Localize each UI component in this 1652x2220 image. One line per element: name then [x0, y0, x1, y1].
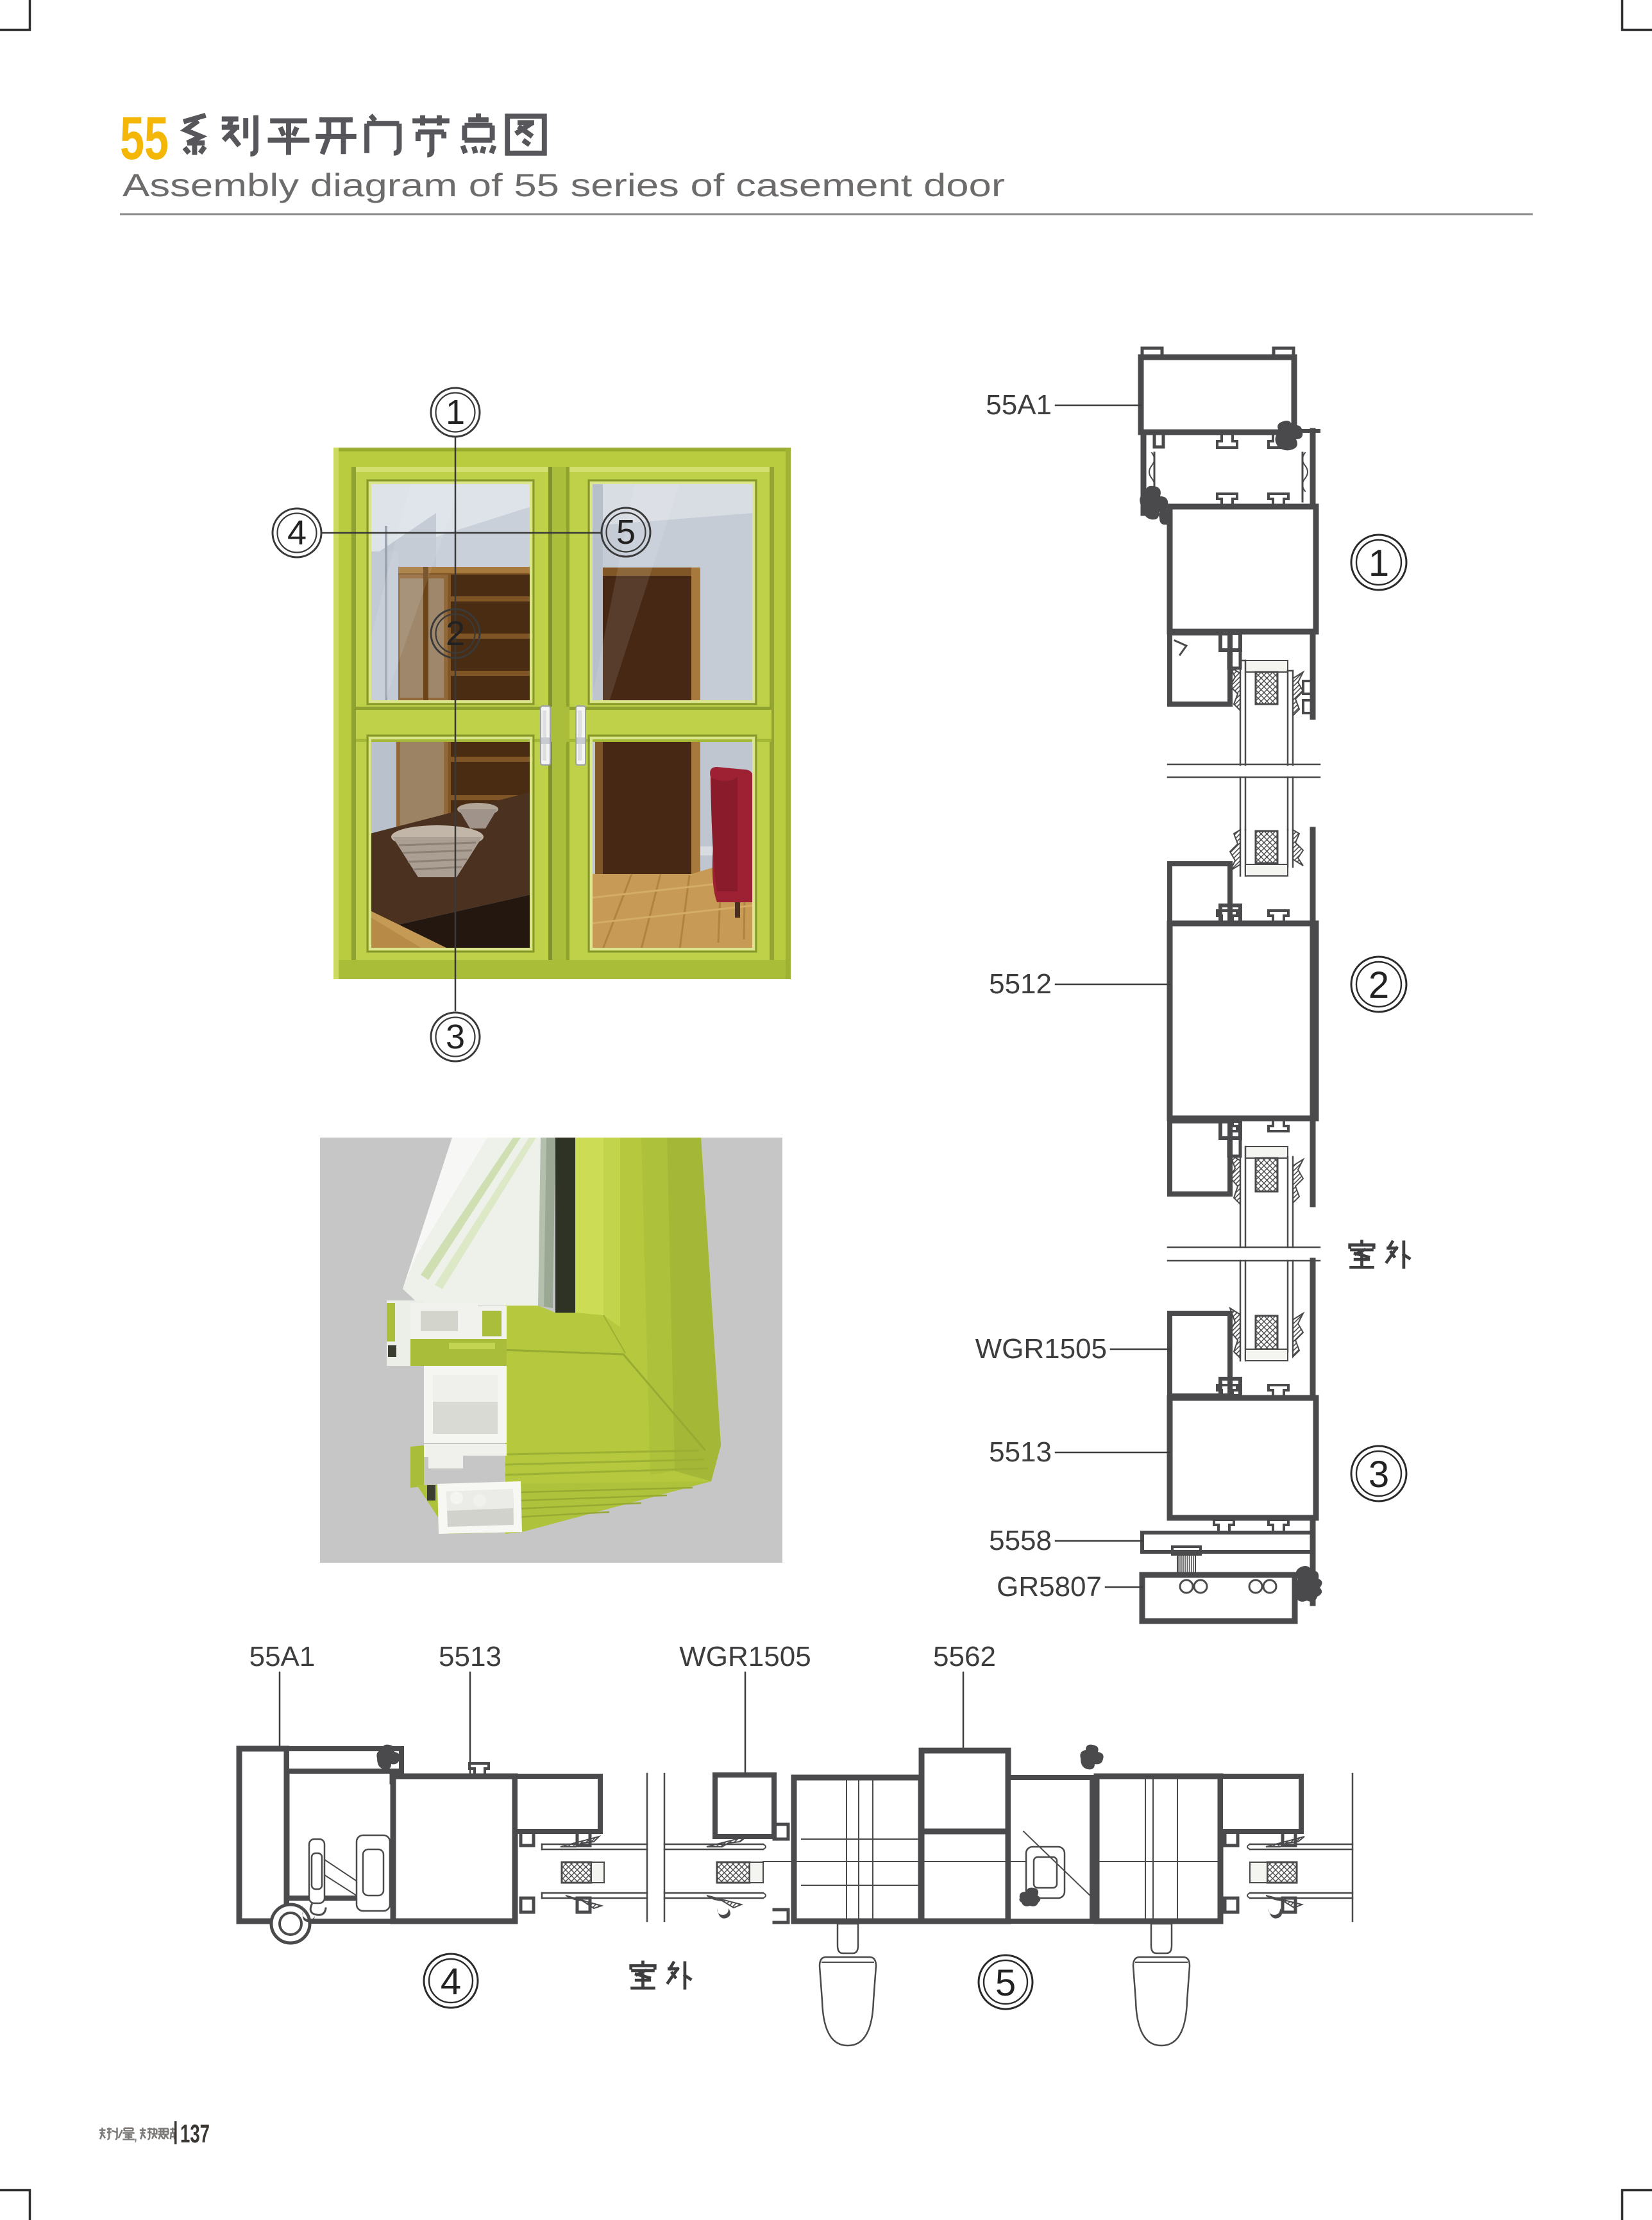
svg-text:137: 137	[180, 2120, 210, 2148]
svg-text:WGR1505: WGR1505	[975, 1333, 1107, 1365]
svg-text:5513: 5513	[989, 1436, 1052, 1468]
svg-text:5: 5	[616, 513, 636, 551]
svg-text:,: ,	[133, 2127, 138, 2144]
svg-text:2: 2	[446, 614, 465, 653]
svg-text:GR5807: GR5807	[997, 1571, 1102, 1602]
svg-text:55A1: 55A1	[249, 1641, 316, 1672]
svg-text:5: 5	[995, 1962, 1016, 2004]
svg-text:2: 2	[1369, 964, 1389, 1006]
svg-text:1: 1	[446, 393, 465, 432]
svg-text:1: 1	[1369, 542, 1389, 584]
svg-text:5512: 5512	[989, 968, 1052, 1000]
svg-text:55A1: 55A1	[986, 389, 1052, 421]
svg-text:4: 4	[287, 514, 307, 552]
svg-text:Assembly diagram of 55 series: Assembly diagram of 55 series of casemen…	[122, 167, 1005, 203]
svg-text:5558: 5558	[989, 1525, 1052, 1556]
svg-text:4: 4	[441, 1961, 461, 2003]
svg-text:5513: 5513	[439, 1641, 501, 1672]
svg-text:3: 3	[1369, 1454, 1389, 1495]
svg-text:55: 55	[120, 105, 169, 172]
svg-text:5562: 5562	[933, 1641, 996, 1672]
svg-text:WGR1505: WGR1505	[679, 1641, 811, 1672]
svg-text:3: 3	[446, 1018, 465, 1056]
